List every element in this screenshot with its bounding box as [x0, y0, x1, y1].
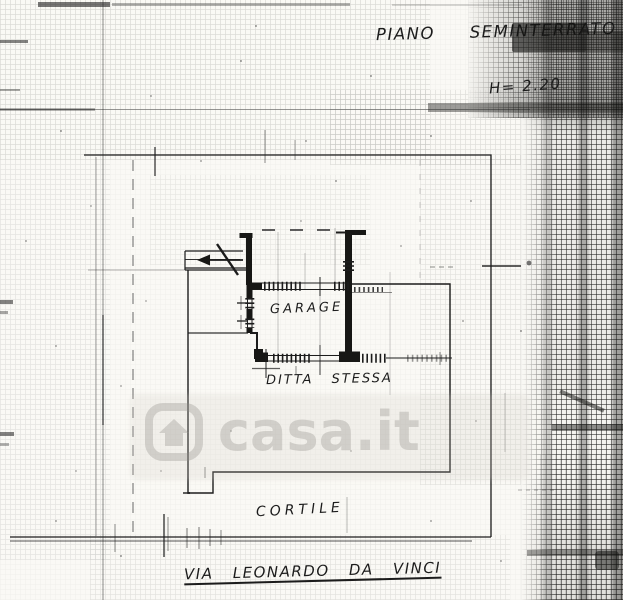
floor-plan-drawing — [0, 0, 623, 600]
garage-walls — [237, 230, 452, 378]
projection-lines — [88, 160, 505, 452]
property-boundary — [84, 147, 558, 537]
scanned-floor-plan-page: casa.it PIANO SEMINTERRATO H= 2.20 GARAG… — [0, 0, 623, 600]
building-outline — [183, 270, 450, 493]
ramp-arrow-icon — [197, 255, 243, 266]
street-boundary — [10, 497, 491, 557]
